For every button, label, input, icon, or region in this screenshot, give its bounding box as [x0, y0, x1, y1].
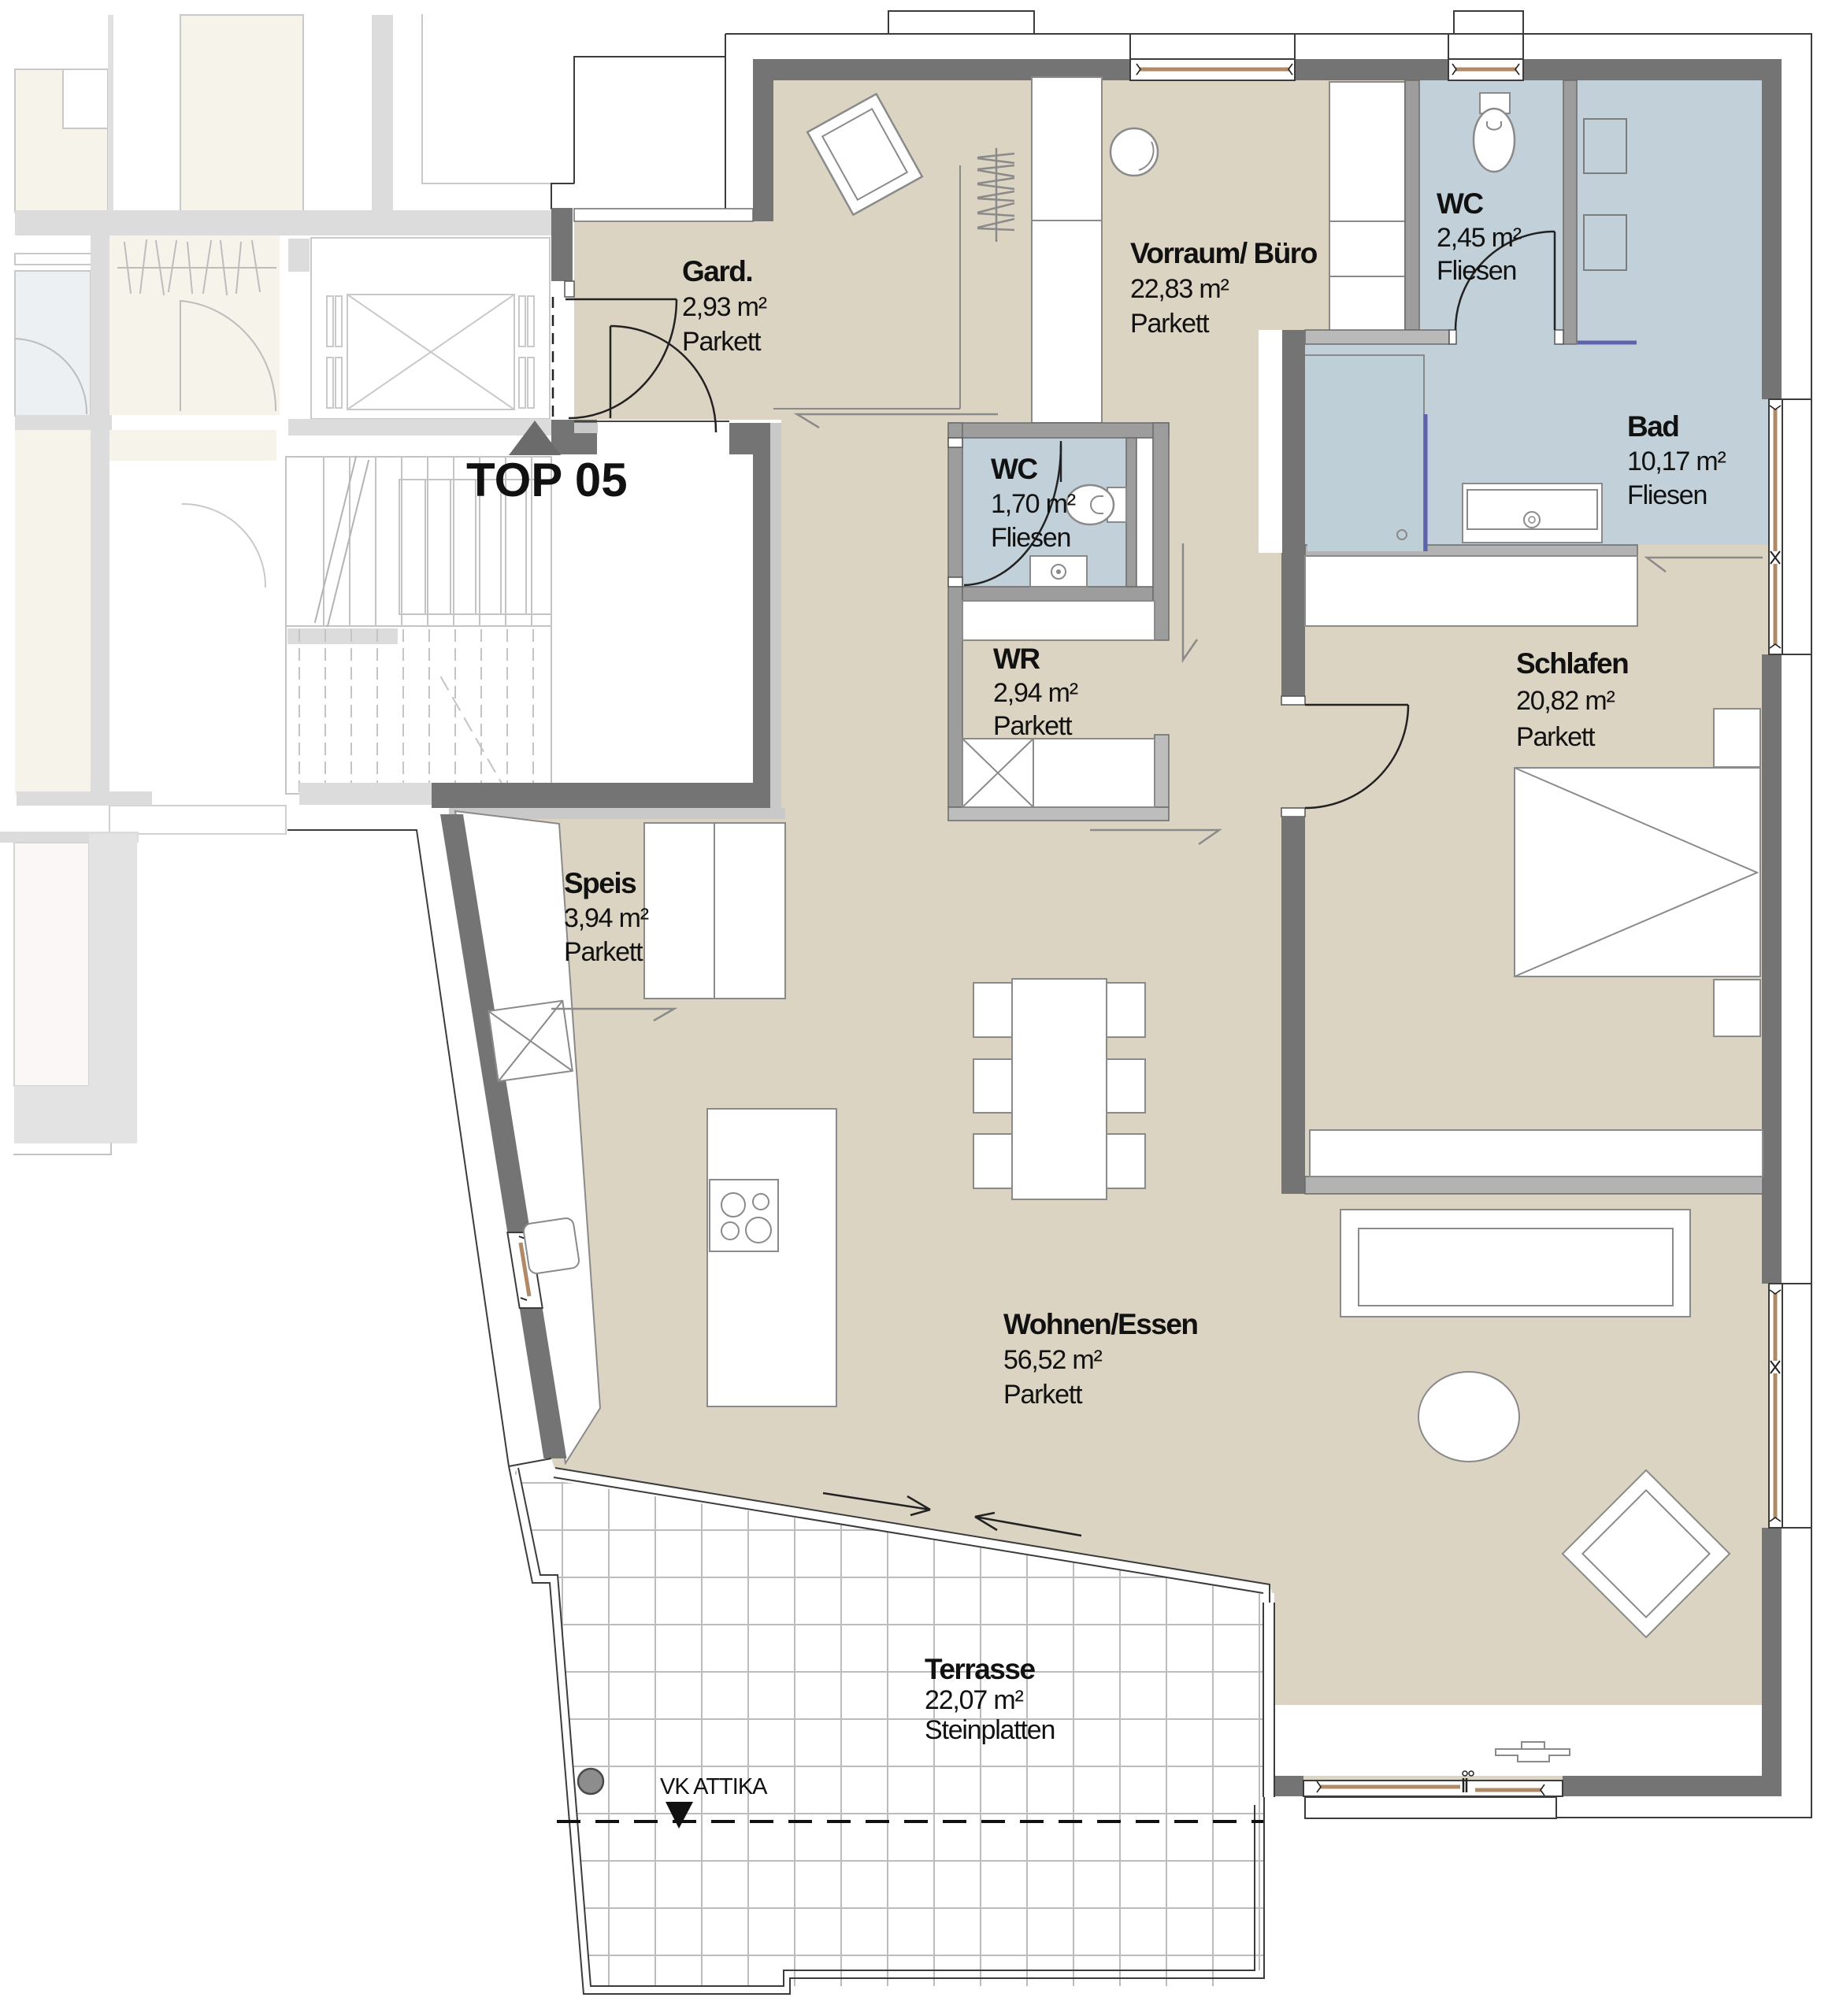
svg-text:Gard.: Gard. — [682, 255, 752, 287]
svg-text:Parkett: Parkett — [1003, 1380, 1083, 1410]
svg-text:Parkett: Parkett — [682, 327, 762, 357]
svg-text:Fliesen: Fliesen — [991, 523, 1070, 553]
svg-text:Steinplatten: Steinplatten — [925, 1715, 1055, 1745]
svg-text:2,94 m²: 2,94 m² — [993, 678, 1078, 708]
svg-text:Parkett: Parkett — [564, 937, 643, 967]
svg-text:56,52 m²: 56,52 m² — [1003, 1345, 1102, 1375]
svg-text:Terrasse: Terrasse — [925, 1653, 1035, 1685]
svg-text:Fliesen: Fliesen — [1627, 480, 1707, 510]
svg-text:WC: WC — [991, 453, 1037, 485]
svg-text:TOP 05: TOP 05 — [466, 454, 628, 506]
svg-text:WR: WR — [993, 643, 1040, 675]
svg-text:22,83 m²: 22,83 m² — [1130, 274, 1229, 304]
svg-text:Bad: Bad — [1627, 410, 1678, 443]
svg-text:Speis: Speis — [564, 867, 636, 899]
svg-text:10,17 m²: 10,17 m² — [1627, 447, 1726, 476]
svg-text:2,45 m²: 2,45 m² — [1437, 223, 1522, 253]
svg-text:Vorraum/ Büro: Vorraum/ Büro — [1130, 237, 1318, 269]
svg-text:20,82 m²: 20,82 m² — [1516, 686, 1615, 716]
svg-text:VK ATTIKA: VK ATTIKA — [660, 1774, 768, 1799]
svg-text:Schlafen: Schlafen — [1516, 647, 1628, 680]
svg-text:3,94 m²: 3,94 m² — [564, 903, 649, 933]
svg-text:Wohnen/Essen: Wohnen/Essen — [1003, 1308, 1198, 1340]
svg-text:Fliesen: Fliesen — [1437, 256, 1516, 286]
svg-text:WC: WC — [1437, 187, 1483, 220]
svg-text:Parkett: Parkett — [1516, 722, 1596, 752]
svg-text:Parkett: Parkett — [1130, 309, 1210, 339]
svg-text:1,70 m²: 1,70 m² — [991, 489, 1076, 519]
svg-text:2,93 m²: 2,93 m² — [682, 292, 767, 322]
svg-text:22,07 m²: 22,07 m² — [925, 1685, 1023, 1715]
svg-text:Parkett: Parkett — [993, 711, 1073, 741]
